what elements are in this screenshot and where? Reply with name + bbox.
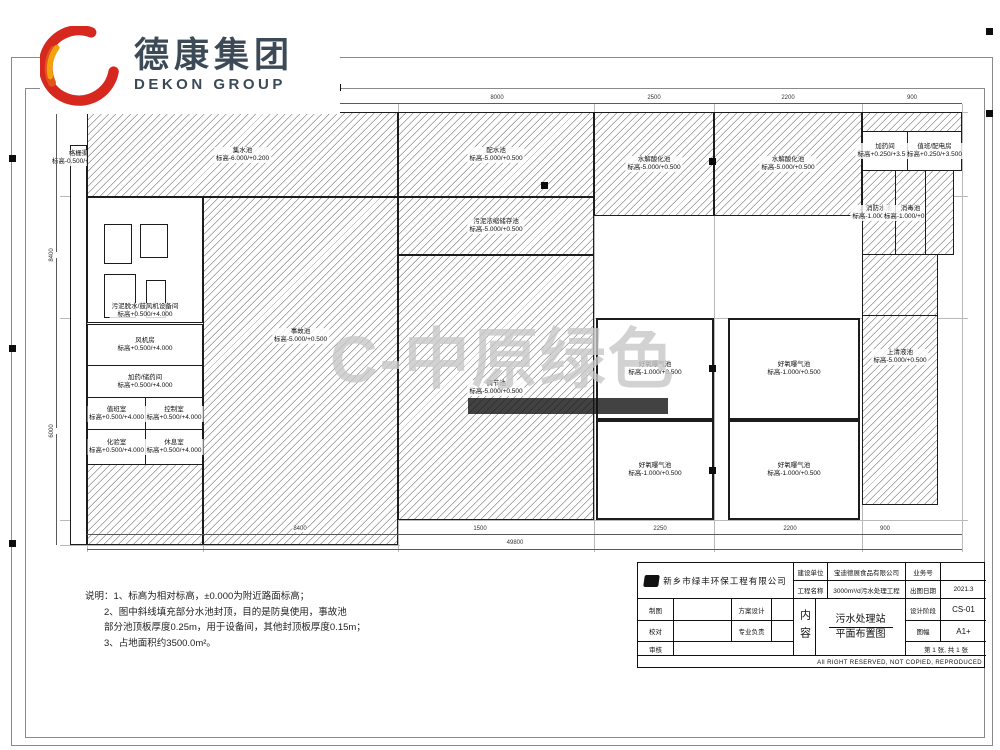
draft-label: 制图 — [638, 599, 674, 621]
date-label: 出图日期 — [906, 581, 941, 599]
logo-english-name: DEKON GROUP — [134, 75, 294, 95]
grid-marker — [709, 365, 716, 372]
jobno-value — [941, 563, 986, 581]
room-chemical-storage: 加药/储药间标高+0.500/+4.000 — [87, 365, 203, 398]
room-blower: 风机房标高+0.500/+4.000 — [87, 324, 203, 366]
tank-aeration-3: 好氧曝气池标高-1.000/+0.500 — [596, 420, 714, 520]
grid-marker — [541, 182, 548, 189]
logo-chinese-name: 德康集团 — [134, 37, 294, 75]
room-laboratory: 化验室标高+0.500/+4.000 — [87, 429, 146, 465]
watermark: C-中原绿色 — [330, 314, 690, 404]
owner-value: 宝迪德展食品有限公司 — [828, 563, 906, 581]
tank-hydrolysis-2: 水解酸化池标高-5.000/+0.500 — [714, 112, 862, 216]
scheme-value — [772, 599, 794, 621]
check-label: 校对 — [638, 621, 674, 642]
dimension-line-bottom — [87, 534, 962, 535]
grid-line — [962, 104, 963, 552]
dimension-line-left — [56, 112, 57, 545]
company-logo: 德康集团 DEKON GROUP — [40, 18, 340, 114]
grid-marker — [9, 345, 16, 352]
grid-marker — [709, 158, 716, 165]
dimension-value: 8400 — [292, 526, 307, 532]
dimension-total: 49800 — [506, 540, 525, 546]
review-label: 审核 — [638, 642, 674, 656]
note-line: 3、占地面积约3500.0m²。 — [104, 636, 366, 652]
hatched-strip — [862, 254, 938, 316]
stage-value: CS-01 — [941, 599, 986, 621]
project-value: 3000m³/d污水处理工程 — [828, 581, 906, 599]
hatched-strip — [87, 464, 203, 545]
drawing-sheet: { "logo": { "cn": "德康集团", "en": "DEKON G… — [0, 0, 1000, 750]
drawing-notes: 说明：1、标高为相对标高，±0.000为附近路面标高； 2、图中斜线填充部分水池… — [85, 589, 366, 651]
content-subtitle: 平面布置图 — [836, 628, 886, 641]
dimension-value: 6000 — [44, 428, 59, 434]
equipment-rect — [104, 224, 132, 264]
grid-line — [60, 545, 400, 546]
design-company-cell: 新乡市绿丰环保工程有限公司 — [638, 563, 794, 599]
dimension-line-total — [87, 549, 962, 550]
hatched-strip — [862, 112, 962, 132]
grid-marker — [9, 540, 16, 547]
company-logo-mark-icon — [643, 575, 660, 587]
content-label: 内容 — [794, 599, 816, 656]
grid-marker — [986, 110, 993, 117]
hatched-cell — [925, 170, 954, 255]
draft-value — [674, 599, 732, 621]
room-duty: 值班室标高+0.500/+4.000 — [87, 397, 146, 430]
dimension-value: 8000 — [489, 95, 504, 101]
sheet-number: 第 1 张, 共 1 张 — [906, 642, 986, 656]
check-value — [674, 621, 732, 642]
dimension-value: 1500 — [472, 526, 487, 532]
room-dosing: 加药间标高+0.250/+3.500 — [862, 131, 908, 171]
dimension-value: 900 — [906, 95, 918, 101]
design-company-name: 新乡市绿丰环保工程有限公司 — [663, 575, 787, 587]
stage-label: 设计阶段 — [906, 599, 941, 621]
tank-hydrolysis-1: 水解酸化池标高-5.000/+0.500 — [594, 112, 714, 216]
watermark-text: -中原绿色 — [380, 322, 676, 396]
content-cell: 污水处理站 平面布置图 — [816, 599, 906, 656]
scheme-label: 方案设计 — [732, 599, 772, 621]
dimension-value: 2500 — [646, 95, 661, 101]
review-value — [674, 642, 794, 656]
project-label: 工程名称 — [794, 581, 828, 599]
room-control: 控制室标高+0.500/+4.000 — [145, 397, 203, 430]
note-line: 部分池顶板厚度0.25m，用于设备间，其他封顶板厚度0.15m； — [104, 620, 366, 636]
dimension-value: 900 — [879, 526, 891, 532]
lead-value — [772, 621, 794, 642]
grid-marker — [9, 155, 16, 162]
tank-aeration-2: 好氧曝气池标高-1.000/+0.500 — [728, 318, 860, 420]
owner-label: 建设单位 — [794, 563, 828, 581]
dimension-value: 2200 — [780, 95, 795, 101]
note-line: 2、图中斜线填充部分水池封顶，目的是防臭使用，事故池 — [104, 605, 366, 621]
watermark-redaction-bar — [468, 398, 668, 414]
copyright-strip: All RIGHT RESERVED, NOT COPIED, REPRODUC… — [638, 656, 986, 669]
title-block: 新乡市绿丰环保工程有限公司 建设单位 宝迪德展食品有限公司 业务号 工程名称 3… — [637, 562, 985, 668]
dimension-value: 2200 — [782, 526, 797, 532]
grid-marker — [709, 467, 716, 474]
size-value: A1+ — [941, 621, 986, 642]
tank-disinfection: 消毒池标高-1.000/+0.500 — [895, 170, 926, 255]
tank-grille-channel: 格栅渠标高-0.500/+0.500 — [70, 145, 87, 545]
room-rest: 休息室标高+0.500/+4.000 — [145, 429, 203, 465]
size-label: 图幅 — [906, 621, 941, 642]
lead-label: 专业负责 — [732, 621, 772, 642]
tank-sludge-thickening: 污泥浓缩储存池标高-5.000/+0.500 — [398, 197, 594, 255]
tank-aeration-4: 好氧曝气池标高-1.000/+0.500 — [728, 420, 860, 520]
date-value: 2021.3 — [941, 581, 986, 599]
equipment-rect — [140, 224, 168, 258]
tank-distribution: 配水池标高-5.000/+0.500 — [398, 112, 594, 197]
note-line: 说明：1、标高为相对标高，±0.000为附近路面标高； — [85, 589, 366, 605]
jobno-label: 业务号 — [906, 563, 941, 581]
content-title: 污水处理站 — [829, 613, 893, 628]
dekon-logo-swoosh-icon — [40, 26, 120, 106]
tank-supernatant: 上清液池标高-5.000/+0.500 — [862, 315, 938, 505]
room-sludge-dewater-blower: 污泥脱水/鼓风机设备间标高+0.500/+4.000 — [87, 197, 203, 323]
grid-marker — [986, 28, 993, 35]
dimension-value: 2250 — [652, 526, 667, 532]
tank-collection-sump: 集水池标高-6.000/+0.200 — [87, 112, 398, 197]
dimension-value: 8400 — [44, 252, 59, 258]
room-duty-power: 值班/配电房标高+0.250/+3.500 — [907, 131, 962, 171]
watermark-c-icon: C — [330, 322, 380, 396]
